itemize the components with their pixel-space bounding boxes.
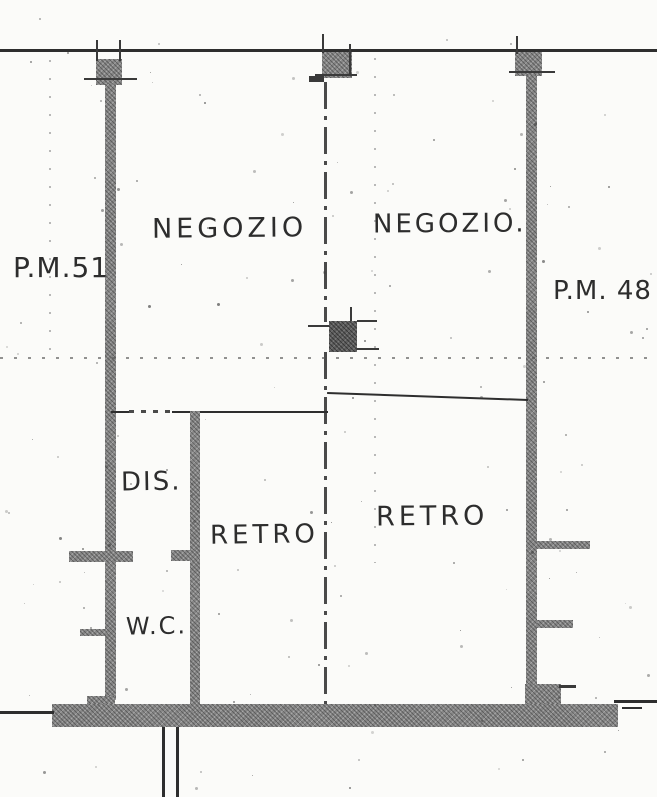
scan-noise-dot	[158, 43, 160, 45]
scan-noise-dot	[120, 243, 123, 246]
scan-noise-dot	[6, 346, 8, 348]
scan-noise-dot	[191, 494, 193, 496]
scan-noise-dot	[199, 94, 201, 96]
scan-noise-dot	[284, 706, 287, 709]
scan-noise-dot	[158, 477, 159, 478]
scan-noise-dot	[460, 645, 463, 648]
scan-noise-dot	[560, 471, 562, 473]
scan-noise-dot	[136, 180, 138, 182]
scan-noise-dot	[559, 550, 561, 552]
scan-noise-dot	[148, 305, 151, 308]
tick-top-left-a	[96, 40, 98, 61]
scan-noise-dot	[83, 607, 85, 609]
exterior-wall-bottom	[52, 704, 618, 727]
scan-noise-dot	[130, 483, 132, 485]
scan-noise-dot	[264, 479, 266, 481]
scan-noise-dot	[352, 397, 354, 399]
scan-noise-dot	[364, 340, 366, 342]
tick-top-right-a	[516, 36, 518, 54]
scan-noise-dot	[361, 501, 362, 502]
scan-noise-dot	[511, 687, 512, 688]
scan-noise-dot	[105, 465, 108, 468]
scan-noise-dot	[253, 170, 256, 173]
scan-noise-dot	[17, 353, 19, 355]
faint-vertical-line-center	[374, 58, 376, 563]
below-band-line-b	[176, 727, 179, 797]
tick-top-center-a	[322, 34, 324, 53]
scan-noise-dot	[514, 168, 516, 170]
scan-noise-dot	[237, 569, 239, 571]
room-label-negozio-left: NEGOZIO	[152, 212, 307, 245]
stub-dis-wc-right	[171, 550, 198, 561]
scan-noise-dot	[204, 102, 206, 104]
scan-noise-dot	[576, 572, 577, 573]
parcel-label-pm-48: P.M. 48	[553, 276, 652, 306]
scan-noise-dot	[108, 544, 111, 547]
scan-noise-dot	[646, 328, 648, 330]
scan-noise-dot	[96, 362, 98, 364]
scan-noise-dot	[24, 603, 25, 604]
scan-noise-dot	[480, 396, 483, 399]
scan-noise-dot	[460, 630, 461, 631]
scan-noise-dot	[57, 456, 59, 458]
room-label-dis: DIS.	[121, 466, 182, 497]
scan-noise-dot	[43, 771, 46, 774]
bottom-thin-line-left	[0, 711, 54, 714]
scan-noise-dot	[543, 381, 545, 383]
scan-noise-dot	[260, 343, 263, 346]
scan-noise-dot	[531, 551, 534, 554]
pillar-center	[329, 321, 357, 352]
scan-noise-dot	[506, 589, 507, 590]
scan-noise-dot	[487, 466, 489, 468]
scan-noise-dot	[630, 331, 633, 334]
scan-noise-dot	[291, 279, 294, 282]
scan-noise-dot	[558, 697, 560, 699]
scan-noise-dot	[166, 570, 168, 572]
tick-top-center-b	[349, 44, 351, 76]
room-label-wc: W.C.	[126, 611, 188, 640]
scan-noise-dot	[480, 386, 482, 388]
scan-noise-dot	[334, 565, 336, 567]
scan-noise-dot	[95, 766, 97, 768]
scan-noise-dot	[181, 264, 182, 265]
bottom-dash-right	[622, 707, 642, 709]
scan-noise-dot	[604, 114, 606, 116]
scan-noise-dot	[650, 273, 652, 275]
tick-center-top	[350, 307, 352, 321]
scan-noise-dot	[371, 731, 374, 734]
scan-noise-dot	[162, 590, 164, 592]
scan-noise-dot	[349, 787, 351, 789]
scan-noise-dot	[604, 751, 606, 753]
stub-top-center-left	[309, 76, 324, 82]
scan-noise-dot	[323, 271, 326, 274]
scan-noise-dot	[125, 688, 128, 691]
below-band-line-a	[162, 727, 165, 797]
scan-noise-dot	[498, 768, 500, 770]
exterior-wall-right	[526, 75, 537, 686]
scan-noise-dot	[217, 303, 220, 306]
scan-noise-dot	[492, 100, 494, 102]
scan-noise-dot	[356, 71, 359, 74]
scan-noise-dot	[207, 227, 209, 229]
scan-noise-dot	[274, 387, 275, 388]
scan-noise-dot	[450, 337, 452, 339]
scan-noise-dot	[581, 464, 583, 466]
scan-noise-dot	[389, 285, 391, 287]
scan-noise-dot	[200, 771, 202, 773]
scan-noise-dot	[350, 191, 353, 194]
scan-noise-dot	[252, 775, 253, 776]
scan-noise-dot	[166, 469, 168, 471]
scan-noise-dot	[504, 199, 507, 202]
scan-noise-dot	[595, 697, 597, 699]
scan-noise-dot	[629, 606, 632, 609]
room-label-retro-right: RETRO	[376, 501, 489, 533]
scan-noise-dot	[332, 215, 334, 217]
scan-noise-dot	[642, 337, 644, 339]
parcel-label-pm-51: P.M.51	[13, 251, 109, 284]
scan-noise-dot	[547, 204, 548, 205]
partition-right	[327, 392, 528, 401]
scan-noise-dot	[344, 431, 346, 433]
scan-noise-dot	[32, 439, 33, 440]
scan-noise-dot	[523, 365, 526, 368]
scan-noise-dot	[281, 133, 284, 136]
scan-noise-dot	[374, 704, 376, 706]
scan-noise-dot	[318, 664, 320, 666]
scan-noise-dot	[393, 94, 395, 96]
scan-noise-dot	[358, 759, 360, 761]
floor-plan: NEGOZIO NEGOZIO. P.M.51 P.M. 48 DIS. RET…	[0, 0, 657, 797]
room-label-retro-left: RETRO	[210, 519, 319, 551]
scan-noise-dot	[625, 603, 626, 604]
scan-noise-dot	[365, 652, 368, 655]
scan-noise-dot	[522, 759, 524, 761]
exterior-wall-left	[105, 84, 116, 700]
scan-noise-dot	[205, 419, 206, 420]
scan-noise-dot	[647, 674, 650, 677]
scan-noise-dot	[233, 701, 235, 703]
scan-noise-dot	[67, 52, 69, 54]
scan-noise-dot	[152, 82, 153, 83]
scan-noise-dot	[8, 512, 10, 514]
scan-noise-dot	[510, 43, 512, 45]
scan-noise-dot	[90, 627, 92, 629]
room-label-negozio-right: NEGOZIO.	[373, 208, 527, 239]
division-line-upper	[324, 82, 327, 322]
scan-noise-dot	[549, 578, 550, 579]
scan-noise-dot	[20, 322, 22, 324]
scan-noise-dot	[117, 435, 119, 437]
partition-left-segment-a	[111, 411, 129, 413]
scan-noise-dot	[509, 208, 511, 210]
scan-noise-dot	[195, 787, 198, 790]
scan-noise-dot	[91, 85, 92, 86]
scan-noise-dot	[542, 260, 545, 263]
tick-top-left-b	[119, 40, 121, 61]
scan-noise-dot	[371, 270, 373, 272]
tick-top-right-h	[509, 71, 555, 73]
scan-noise-dot	[84, 572, 85, 573]
tick-center-left	[308, 325, 329, 327]
scan-noise-dot	[568, 206, 570, 208]
scan-noise-dot	[506, 509, 508, 511]
scan-noise-dot	[250, 694, 251, 695]
scan-noise-dot	[117, 188, 120, 191]
scan-noise-dot	[100, 100, 102, 102]
scan-noise-dot	[5, 510, 8, 513]
scan-noise-dot	[82, 548, 84, 550]
scan-noise-dot	[288, 656, 290, 658]
internal-wall	[190, 411, 200, 712]
scan-noise-dot	[550, 186, 551, 187]
scan-noise-dot	[566, 509, 568, 511]
scan-noise-dot	[387, 190, 389, 192]
scan-noise-dot	[587, 311, 589, 313]
scan-noise-dot	[94, 177, 96, 179]
scan-noise-dot	[292, 77, 295, 80]
scan-noise-dot	[193, 520, 196, 523]
bottom-thin-line-right	[614, 700, 657, 703]
scan-noise-dot	[599, 637, 600, 638]
scan-noise-dot	[453, 562, 455, 564]
scan-noise-dot	[59, 537, 62, 540]
stub-dis-wc-left	[69, 551, 133, 562]
scan-noise-dot	[618, 730, 619, 731]
scan-noise-dot	[598, 247, 601, 250]
scan-noise-dot	[293, 202, 294, 203]
scan-noise-dot	[310, 511, 313, 514]
pillar-top-left	[96, 59, 122, 85]
scan-noise-dot	[433, 139, 435, 141]
scan-noise-dot	[290, 619, 293, 622]
tick-wc-left	[80, 629, 107, 636]
scan-noise-dot	[39, 18, 41, 20]
scan-noise-dot	[59, 581, 61, 583]
stub-right-upper	[537, 541, 590, 549]
tick-top-left-h	[84, 78, 137, 80]
scan-noise-dot	[191, 483, 193, 485]
door-opening-dis	[129, 410, 173, 413]
tick-bottom-right-corner	[559, 685, 576, 688]
scan-noise-dot	[488, 270, 491, 273]
scan-noise-dot	[33, 584, 34, 585]
scan-noise-dot	[331, 522, 332, 523]
scan-noise-dot	[30, 61, 32, 63]
division-line-lower	[324, 352, 327, 712]
faint-horizontal-line	[0, 357, 657, 359]
scan-noise-dot	[340, 595, 342, 597]
scan-noise-dot	[608, 186, 610, 188]
stub-right-lower	[537, 620, 573, 628]
scan-noise-dot	[348, 665, 350, 667]
scan-noise-dot	[446, 39, 448, 41]
faint-vertical-line-left	[49, 60, 51, 360]
scan-noise-dot	[534, 123, 537, 126]
scan-noise-dot	[246, 277, 248, 279]
scan-noise-dot	[218, 613, 220, 615]
scan-noise-dot	[101, 209, 104, 212]
scan-noise-dot	[29, 695, 30, 696]
scan-noise-dot	[337, 162, 338, 163]
scan-noise-dot	[549, 538, 552, 541]
scan-noise-dot	[392, 183, 394, 185]
scan-noise-dot	[565, 434, 567, 436]
scan-noise-dot	[520, 133, 523, 136]
scan-noise-dot	[197, 510, 199, 512]
scan-noise-dot	[481, 720, 483, 722]
scan-noise-dot	[150, 72, 151, 73]
